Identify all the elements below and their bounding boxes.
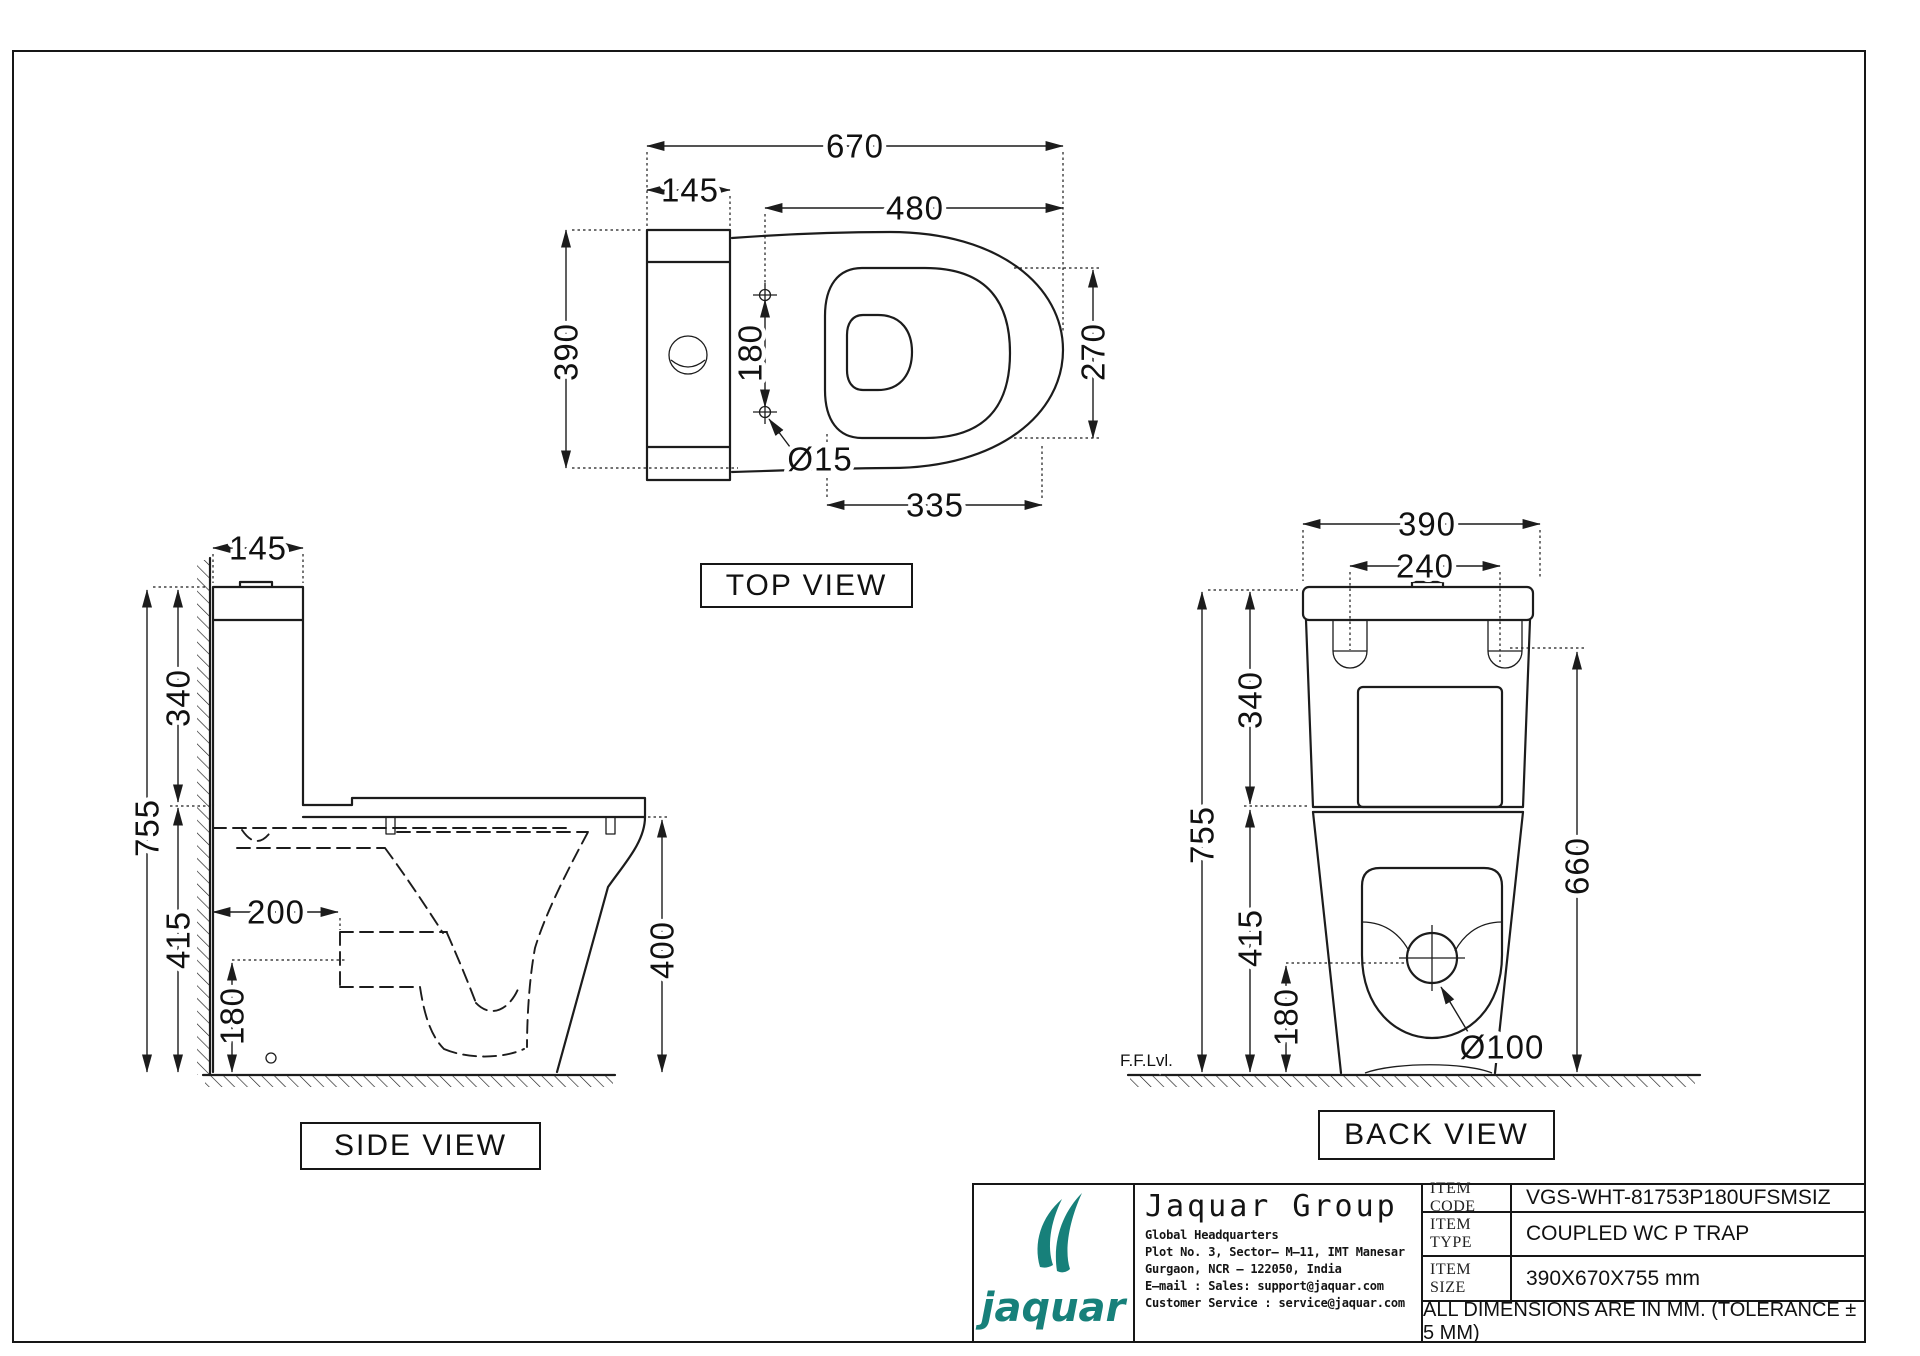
- leader-outlet-dia: [1441, 987, 1468, 1032]
- brand-logo-cell: jaquar: [974, 1185, 1135, 1341]
- item-type-value: COUPLED WC P TRAP: [1512, 1213, 1864, 1255]
- top-view-cistern-outline: [647, 230, 730, 480]
- item-type-label: ITEM TYPE: [1423, 1213, 1512, 1255]
- jaquar-logo-icon: [1038, 1193, 1082, 1272]
- side-view-extension-lines: [153, 554, 670, 960]
- company-info-cell: Jaquar Group Global Headquarters Plot No…: [1135, 1185, 1423, 1341]
- dim-text-660: 660: [1559, 837, 1596, 895]
- outlet-crosshair: [1399, 925, 1465, 991]
- company-address: Global Headquarters Plot No. 3, Sector– …: [1145, 1227, 1411, 1312]
- item-code-row: ITEM CODE VGS-WHT-81753P180UFSMSIZ: [1423, 1185, 1864, 1213]
- dim-text-755-side: 755: [129, 799, 166, 857]
- top-view-bowl-opening: [847, 315, 912, 390]
- seat-hinge-slots: [1333, 620, 1522, 668]
- address-line: Customer Service : service@jaquar.com: [1145, 1295, 1411, 1312]
- back-view-extension-lines: [1208, 530, 1587, 963]
- company-name: Jaquar Group: [1145, 1189, 1411, 1224]
- dim-text-415-back: 415: [1232, 909, 1269, 967]
- side-view-cistern: [213, 582, 303, 805]
- top-view-drawing: 670 145 480 390 180 270 335 Ø15: [548, 128, 1112, 524]
- item-code-value: VGS-WHT-81753P180UFSMSIZ: [1512, 1185, 1864, 1211]
- back-view-cistern-lid: [1303, 587, 1533, 620]
- side-view-seat: [303, 798, 645, 817]
- dim-text-240: 240: [1396, 548, 1454, 585]
- rear-fixing-hole-side: [266, 1053, 276, 1063]
- item-size-value: 390X670X755 mm: [1512, 1257, 1864, 1300]
- back-view-label: BACK VIEW: [1318, 1110, 1555, 1160]
- back-view-cistern-body: [1306, 620, 1530, 812]
- item-size-row: ITEM SIZE 390X670X755 mm: [1423, 1257, 1864, 1302]
- side-view-label: SIDE VIEW: [300, 1122, 541, 1170]
- dim-text-180-top: 180: [732, 324, 769, 382]
- back-view-access-recess: [1358, 687, 1502, 807]
- side-view-hidden-trapway: [213, 828, 588, 1057]
- back-view-base-curve: [1365, 1065, 1492, 1073]
- dim-text-670: 670: [826, 128, 884, 165]
- dim-text-390-top: 390: [548, 323, 585, 381]
- address-line: Global Headquarters: [1145, 1227, 1411, 1244]
- item-table: ITEM CODE VGS-WHT-81753P180UFSMSIZ ITEM …: [1423, 1185, 1864, 1341]
- dim-text-335: 335: [906, 487, 964, 524]
- item-type-row: ITEM TYPE COUPLED WC P TRAP: [1423, 1213, 1864, 1257]
- dim-text-400: 400: [644, 921, 681, 979]
- flush-button-detail: [671, 360, 705, 367]
- dim-text-180-side: 180: [214, 987, 251, 1045]
- dim-text-415-side: 415: [160, 911, 197, 969]
- jaquar-logo-wordmark: jaquar: [975, 1285, 1128, 1331]
- dim-text-outlet-dia: Ø100: [1460, 1029, 1545, 1066]
- top-view-label-text: TOP VIEW: [726, 569, 888, 603]
- dim-text-340-back: 340: [1232, 671, 1269, 729]
- dim-text-755-back: 755: [1184, 806, 1221, 864]
- dim-text-145-top: 145: [661, 172, 719, 209]
- jaquar-logo: jaquar: [974, 1185, 1133, 1341]
- floor-hatching-side: [205, 1076, 613, 1087]
- back-view-label-text: BACK VIEW: [1344, 1118, 1529, 1152]
- top-view-label: TOP VIEW: [700, 563, 913, 608]
- dim-text-180-back: 180: [1268, 988, 1305, 1046]
- dim-text-390-back: 390: [1398, 506, 1456, 543]
- dim-text-340-side: 340: [160, 669, 197, 727]
- technical-drawing-svg: 670 145 480 390 180 270 335 Ø15 145 755 …: [0, 0, 1920, 1356]
- top-view-seat-outline: [825, 268, 1010, 438]
- dim-text-hole-dia: Ø15: [787, 441, 852, 478]
- side-view-label-text: SIDE VIEW: [334, 1129, 507, 1163]
- tolerance-note: ALL DIMENSIONS ARE IN MM. (TOLERANCE ± 5…: [1423, 1302, 1864, 1341]
- dim-text-145-side: 145: [229, 530, 287, 567]
- flush-button-top: [669, 336, 707, 374]
- side-view-pedestal: [213, 805, 645, 1072]
- item-code-label: ITEM CODE: [1423, 1185, 1512, 1211]
- wall-hatching: [197, 560, 210, 1075]
- floor-hatching-back: [1130, 1076, 1695, 1087]
- dim-text-200: 200: [247, 894, 305, 931]
- back-view-drawing: 390 240 755 340 415 180 660 Ø100 F.F.Lvl…: [1120, 506, 1700, 1088]
- address-line: E–mail : Sales: support@jaquar.com: [1145, 1278, 1411, 1295]
- floor-level-label: F.F.Lvl.: [1120, 1051, 1173, 1070]
- address-line: Gurgaon, NCR – 122050, India: [1145, 1261, 1411, 1278]
- item-size-label: ITEM SIZE: [1423, 1257, 1512, 1300]
- dim-text-480: 480: [886, 190, 944, 227]
- title-block: jaquar Jaquar Group Global Headquarters …: [972, 1183, 1866, 1343]
- dim-text-270: 270: [1075, 323, 1112, 381]
- address-line: Plot No. 3, Sector– M–11, IMT Manesar: [1145, 1244, 1411, 1261]
- side-view-drawing: 145 755 340 415 200 180 400: [129, 530, 681, 1088]
- drawing-sheet: { "sheet": { "note": "ALL DIMENSIONS ARE…: [0, 0, 1920, 1356]
